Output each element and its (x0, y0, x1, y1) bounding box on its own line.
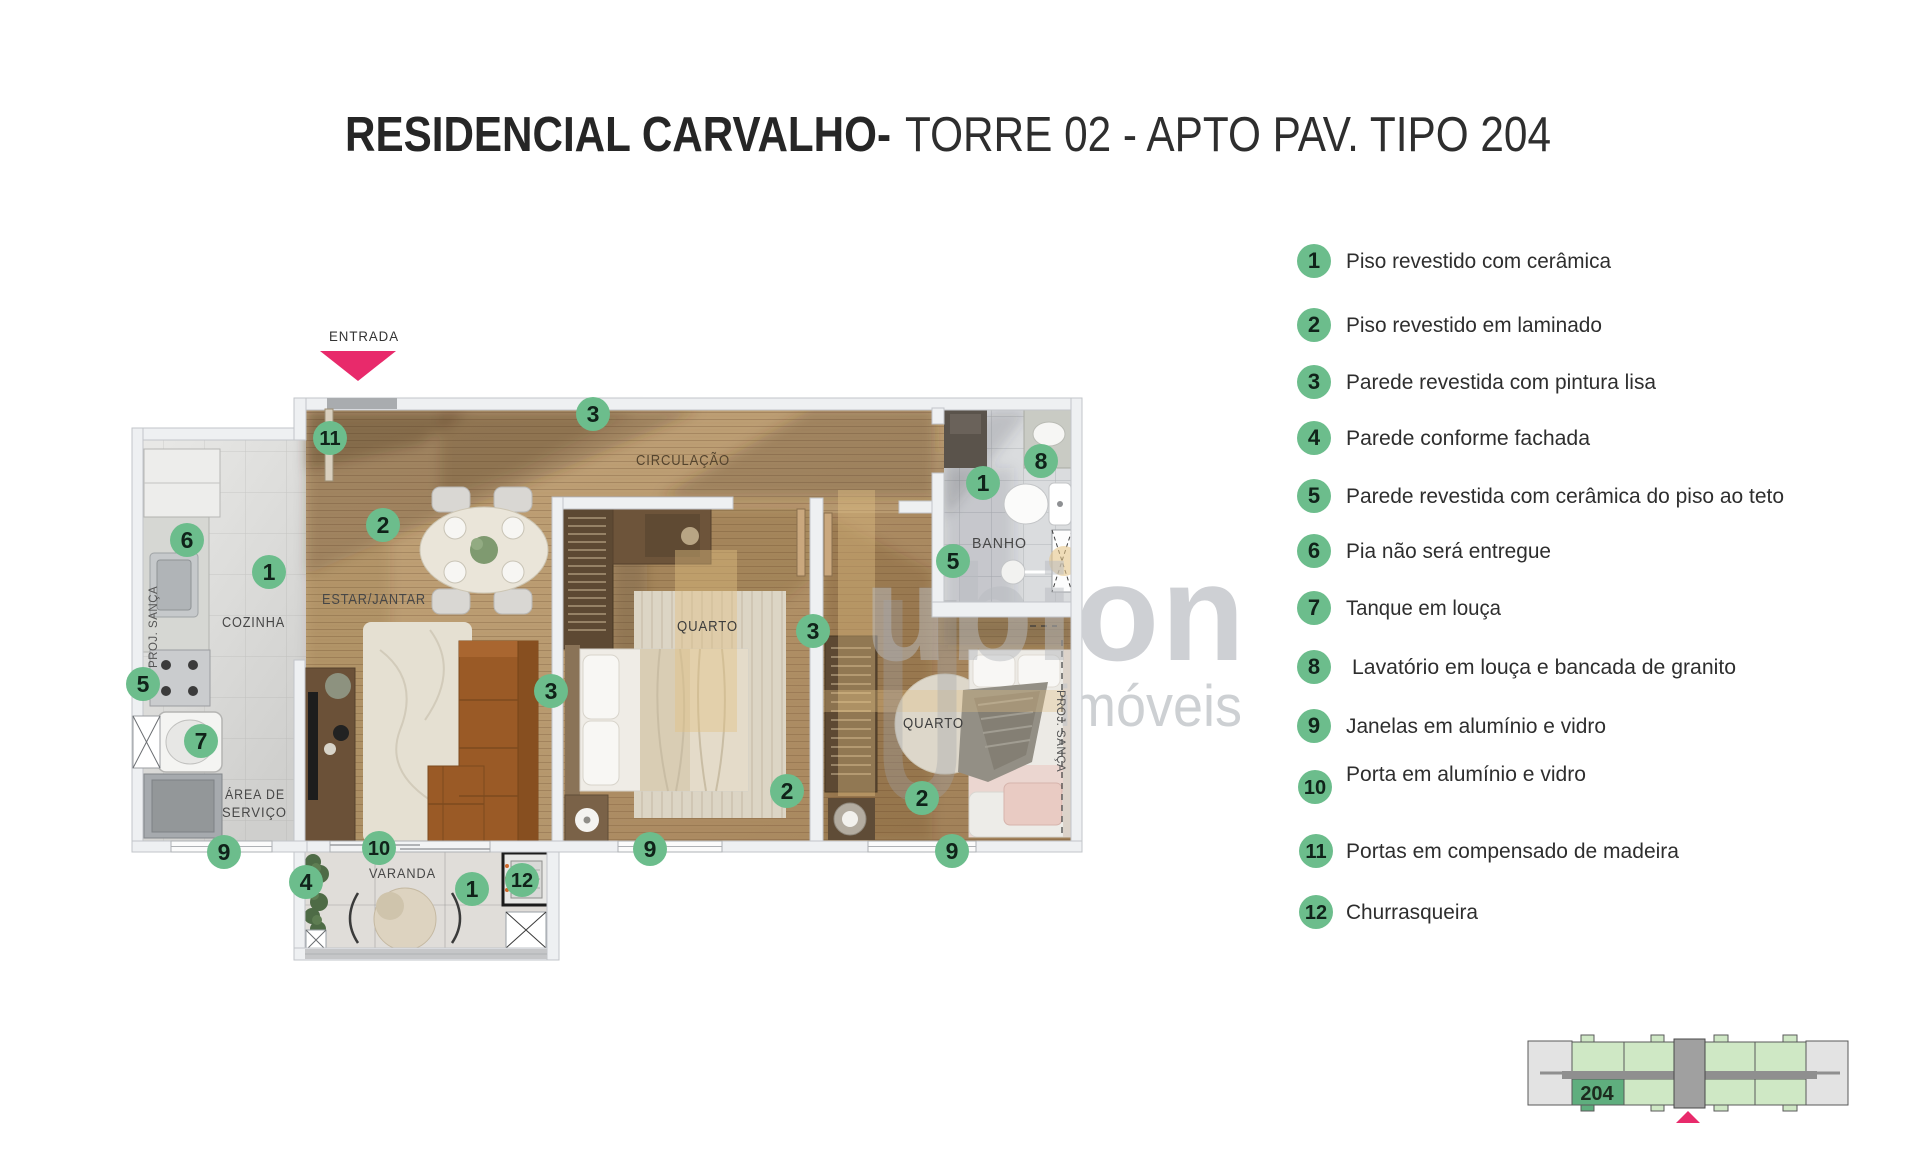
svg-text:2: 2 (781, 778, 794, 804)
svg-text:QUARTO: QUARTO (677, 618, 738, 635)
svg-text:4: 4 (1308, 425, 1321, 450)
svg-text:10: 10 (1304, 777, 1326, 799)
svg-text:2: 2 (377, 512, 390, 538)
svg-text:Churrasqueira: Churrasqueira (1346, 900, 1478, 924)
svg-text:2: 2 (916, 785, 929, 811)
svg-text:Porta em alumínio e vidro: Porta em alumínio e vidro (1346, 762, 1586, 786)
svg-text:5: 5 (947, 548, 960, 574)
svg-text:5: 5 (1308, 483, 1320, 508)
svg-text:Parede revestida com cerâmica: Parede revestida com cerâmica do piso ao… (1346, 484, 1784, 508)
svg-text:3: 3 (587, 401, 600, 427)
svg-text:COZINHA: COZINHA (222, 614, 285, 631)
svg-text:PROJ. SANÇA: PROJ. SANÇA (148, 586, 160, 668)
svg-text:204: 204 (1580, 1083, 1614, 1105)
svg-text:3: 3 (1308, 369, 1320, 394)
svg-text:1: 1 (977, 470, 990, 496)
svg-text:7: 7 (1308, 595, 1320, 620)
svg-text:RESIDENCIAL CARVALHO-: RESIDENCIAL CARVALHO- (345, 108, 891, 162)
svg-text:Portas em compensado de madeir: Portas em compensado de madeira (1346, 839, 1679, 863)
svg-text:Pia não será entregue: Pia não será entregue (1346, 539, 1551, 563)
svg-text:9: 9 (946, 838, 959, 864)
svg-text:QUARTO: QUARTO (903, 715, 964, 732)
svg-text:11: 11 (319, 428, 340, 450)
svg-text:imóveis: imóveis (1059, 674, 1242, 739)
svg-text:3: 3 (807, 618, 820, 644)
svg-text:8: 8 (1308, 654, 1320, 679)
svg-text:CIRCULAÇÃO: CIRCULAÇÃO (636, 452, 730, 469)
svg-text:9: 9 (1308, 713, 1320, 738)
svg-text:11: 11 (1305, 841, 1326, 863)
svg-text:1: 1 (466, 876, 479, 902)
svg-text:ÁREA DE: ÁREA DE (225, 787, 285, 802)
svg-text:Lavatório em louça e bancada d: Lavatório em louça e bancada de granito (1352, 655, 1736, 679)
svg-text:SERVIÇO: SERVIÇO (222, 805, 287, 820)
svg-text:VARANDA: VARANDA (369, 865, 436, 881)
svg-text:BANHO: BANHO (972, 535, 1027, 552)
svg-text:Parede conforme fachada: Parede conforme fachada (1346, 426, 1590, 450)
svg-text:10: 10 (368, 838, 390, 860)
svg-text:6: 6 (181, 527, 194, 553)
svg-text:Piso revestido com cerâmica: Piso revestido com cerâmica (1346, 249, 1611, 273)
svg-text:6: 6 (1308, 538, 1320, 563)
svg-text:Tanque em louça: Tanque em louça (1346, 596, 1501, 620)
svg-text:1: 1 (1308, 248, 1320, 273)
svg-text:12: 12 (1305, 902, 1327, 924)
svg-text:2: 2 (1308, 312, 1320, 337)
svg-text:8: 8 (1035, 448, 1048, 474)
svg-text:Parede revestida com pintura l: Parede revestida com pintura lisa (1346, 370, 1656, 394)
svg-text:Janelas em alumínio e vidro: Janelas em alumínio e vidro (1346, 714, 1606, 738)
svg-text:9: 9 (644, 836, 657, 862)
svg-text:Piso revestido em laminado: Piso revestido em laminado (1346, 313, 1602, 337)
svg-text:ENTRADA: ENTRADA (329, 328, 399, 344)
svg-text:PROJ. SANÇA: PROJ. SANÇA (1054, 690, 1066, 772)
svg-text:3: 3 (545, 678, 558, 704)
svg-text:1: 1 (263, 559, 276, 585)
svg-text:9: 9 (218, 839, 231, 865)
svg-text:12: 12 (511, 870, 533, 892)
svg-text:5: 5 (137, 671, 150, 697)
svg-text:ESTAR/JANTAR: ESTAR/JANTAR (322, 591, 426, 608)
svg-text:TORRE 02 - APTO PAV. TIPO 204: TORRE 02 - APTO PAV. TIPO 204 (905, 108, 1551, 162)
svg-text:4: 4 (300, 869, 313, 895)
svg-text:7: 7 (195, 728, 208, 754)
